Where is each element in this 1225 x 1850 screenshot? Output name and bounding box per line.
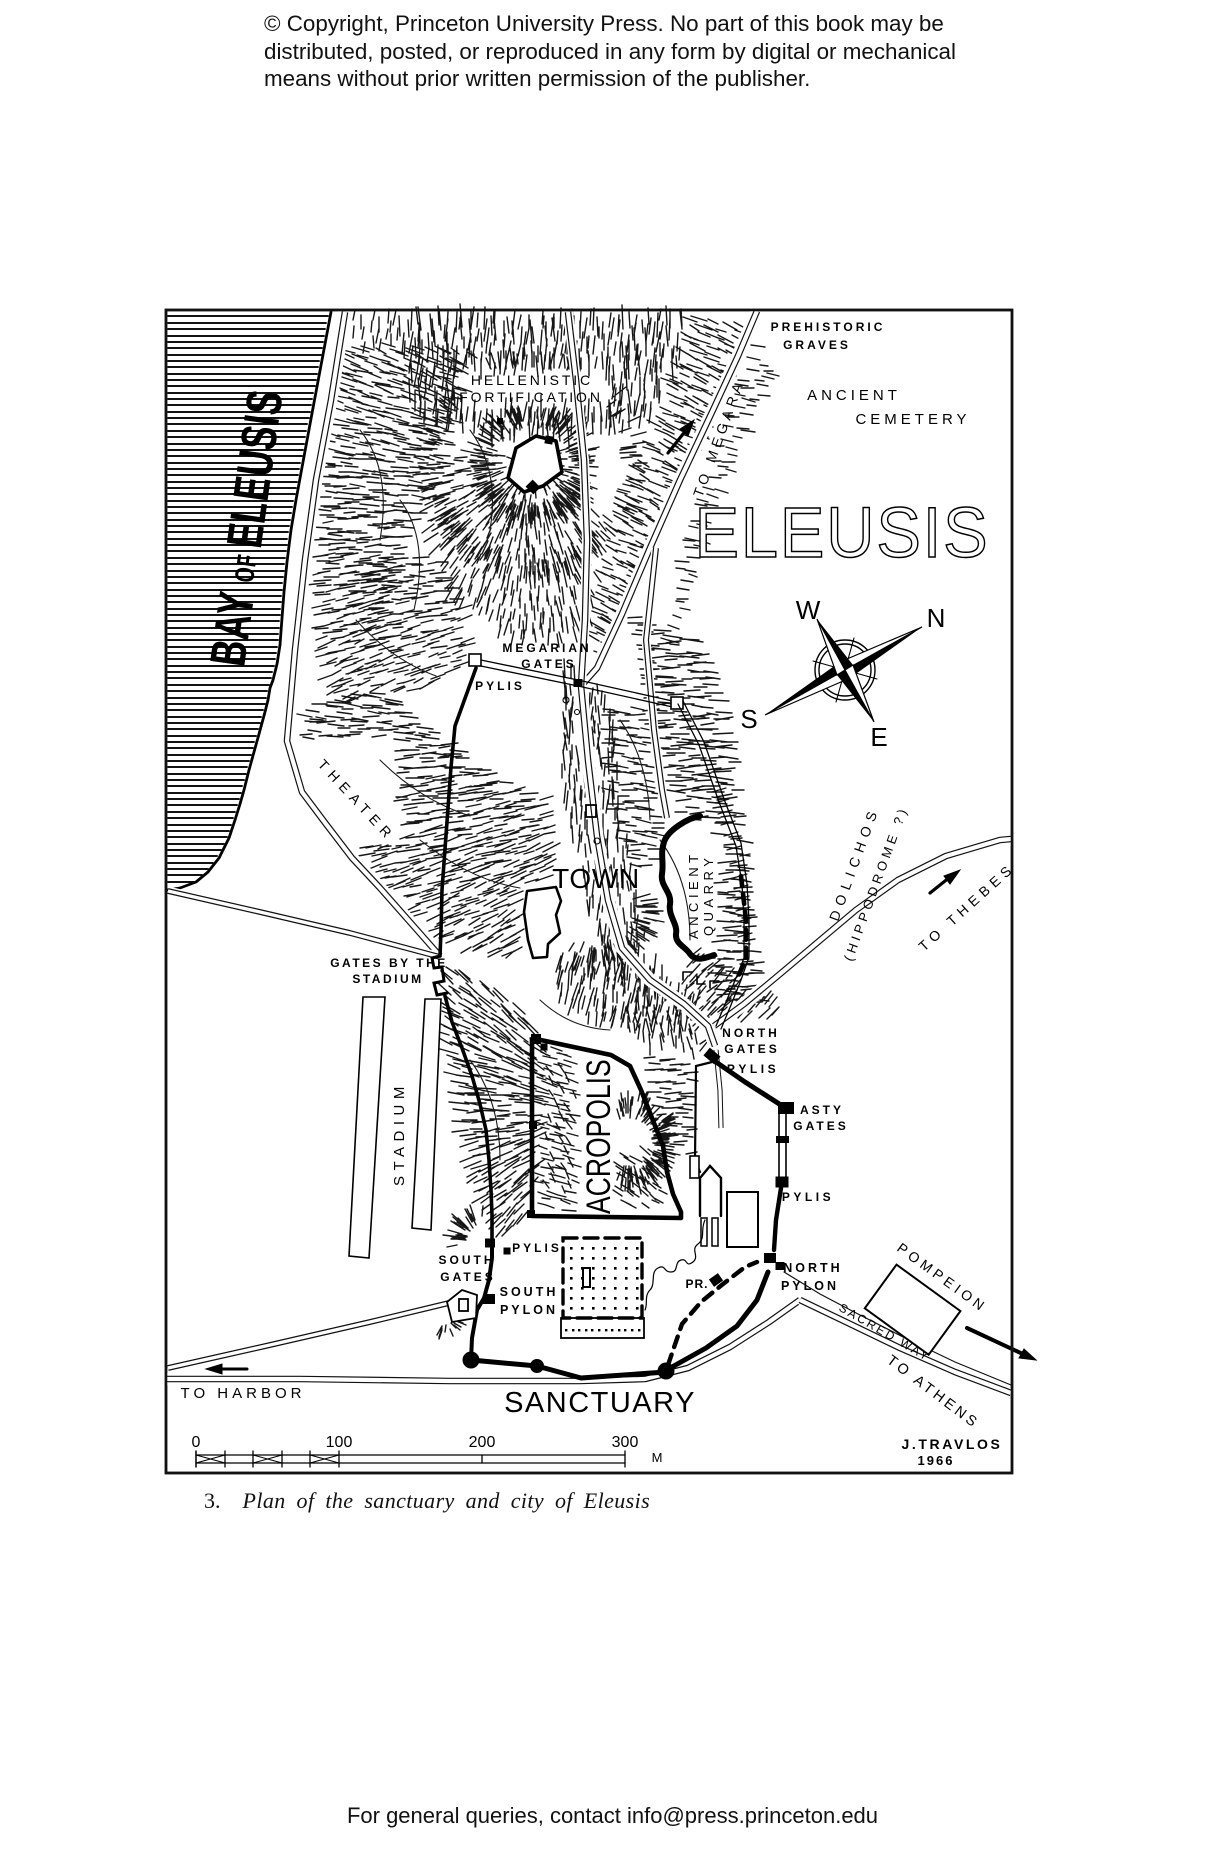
svg-text:HELLENISTIC: HELLENISTIC <box>471 372 593 388</box>
svg-text:M: M <box>652 1450 663 1465</box>
svg-text:FORTIFICATION: FORTIFICATION <box>459 389 603 405</box>
svg-text:ELEUSIS: ELEUSIS <box>694 493 989 572</box>
svg-text:SANCTUARY: SANCTUARY <box>504 1387 696 1419</box>
svg-text:N: N <box>927 603 946 633</box>
svg-text:PYLON: PYLON <box>781 1279 839 1293</box>
svg-text:STADIUM: STADIUM <box>352 972 423 986</box>
svg-text:ANCIENT: ANCIENT <box>807 387 901 404</box>
svg-text:S: S <box>740 704 757 734</box>
svg-text:E: E <box>870 722 887 752</box>
svg-text:GATES BY THE: GATES BY THE <box>330 956 448 970</box>
svg-text:GRAVES: GRAVES <box>783 338 851 352</box>
svg-text:GATES: GATES <box>793 1119 848 1133</box>
svg-text:SOUTH: SOUTH <box>500 1285 559 1299</box>
svg-text:TO THEBES: TO THEBES <box>915 859 1018 954</box>
svg-text:PYLIS: PYLIS <box>782 1190 834 1204</box>
svg-text:ASTY: ASTY <box>800 1103 844 1117</box>
svg-text:MEGARIAN: MEGARIAN <box>502 641 591 655</box>
svg-text:W: W <box>796 595 821 625</box>
svg-text:300: 300 <box>612 1434 639 1451</box>
svg-text:PYLIS: PYLIS <box>727 1062 779 1076</box>
svg-text:PYLON: PYLON <box>500 1303 558 1317</box>
svg-text:ACROPOLIS: ACROPOLIS <box>580 1059 618 1214</box>
svg-text:PREHISTORIC: PREHISTORIC <box>771 320 886 334</box>
svg-text:GATES: GATES <box>440 1270 495 1284</box>
svg-text:NORTH: NORTH <box>783 1261 842 1275</box>
svg-text:ANCIENT: ANCIENT <box>686 850 701 939</box>
svg-text:J.TRAVLOS: J.TRAVLOS <box>902 1436 1003 1452</box>
svg-text:PYLIS: PYLIS <box>475 679 525 693</box>
svg-text:PR.: PR. <box>685 1277 708 1291</box>
svg-text:0: 0 <box>192 1434 201 1451</box>
svg-text:STADIUM: STADIUM <box>391 1081 408 1186</box>
svg-text:NORTH: NORTH <box>722 1026 780 1040</box>
svg-text:GATES: GATES <box>521 657 576 671</box>
svg-text:CEMETERY: CEMETERY <box>855 411 970 428</box>
svg-text:PYLIS: PYLIS <box>512 1241 562 1255</box>
svg-text:SOUTH: SOUTH <box>439 1253 496 1267</box>
svg-text:100: 100 <box>326 1434 353 1451</box>
svg-text:QUARRY: QUARRY <box>701 854 716 936</box>
svg-text:200: 200 <box>469 1434 496 1451</box>
svg-text:TO HARBOR: TO HARBOR <box>181 1385 306 1402</box>
svg-text:TOWN: TOWN <box>552 863 640 894</box>
svg-text:1966: 1966 <box>918 1453 955 1468</box>
svg-text:GATES: GATES <box>724 1042 779 1056</box>
